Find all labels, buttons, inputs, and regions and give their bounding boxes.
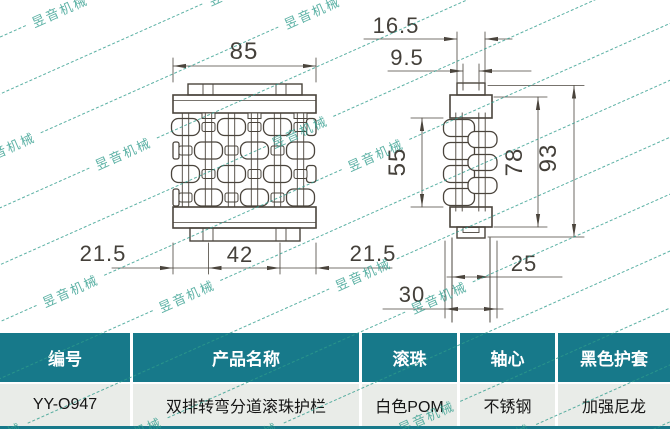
dim-label-93: 93 — [535, 144, 562, 173]
table-header-row: 编号 产品名称 滚珠 轴心 黑色护套 — [0, 333, 670, 382]
front-view — [172, 84, 317, 241]
dim-label-16-5: 16.5 — [373, 13, 420, 38]
dim-label-42: 42 — [227, 242, 253, 267]
cell-ball-material: 白色POM — [362, 384, 460, 426]
side-view — [444, 83, 498, 322]
dim-label-21-5-left: 21.5 — [80, 241, 127, 266]
col-header-code: 编号 — [0, 333, 133, 382]
col-header-name: 产品名称 — [133, 333, 362, 382]
cell-product-name: 双排转弯分道滚珠护栏 — [133, 384, 362, 426]
dim-label-30: 30 — [399, 282, 425, 307]
dim-label-55: 55 — [384, 148, 411, 177]
col-header-axle: 轴心 — [460, 333, 558, 382]
side-rollers — [444, 120, 498, 206]
col-header-sheath: 黑色护套 — [558, 333, 670, 382]
cell-product-code: YY-O947 — [0, 384, 133, 426]
col-header-ball: 滚珠 — [362, 333, 460, 382]
drawing-svg: 85 21.5 42 21.5 16.5 9.5 55 78 93 25 30 — [0, 0, 670, 333]
cell-sheath-material: 加强尼龙 — [558, 384, 670, 426]
technical-drawing: 85 21.5 42 21.5 16.5 9.5 55 78 93 25 30 — [0, 0, 670, 333]
table-data-row: YY-O947 双排转弯分道滚珠护栏 白色POM 不锈钢 加强尼龙 — [0, 384, 670, 426]
cell-axle-material: 不锈钢 — [460, 384, 558, 426]
dim-label-78: 78 — [501, 148, 528, 177]
page: 85 21.5 42 21.5 16.5 9.5 55 78 93 25 30 … — [0, 0, 670, 429]
dim-label-21-5-right: 21.5 — [350, 241, 397, 266]
product-spec-table: 编号 产品名称 滚珠 轴心 黑色护套 YY-O947 双排转弯分道滚珠护栏 白色… — [0, 333, 670, 429]
dim-label-85: 85 — [230, 38, 259, 65]
front-rollers — [172, 119, 317, 207]
dim-label-9-5: 9.5 — [390, 45, 424, 70]
dim-label-25: 25 — [511, 251, 537, 276]
